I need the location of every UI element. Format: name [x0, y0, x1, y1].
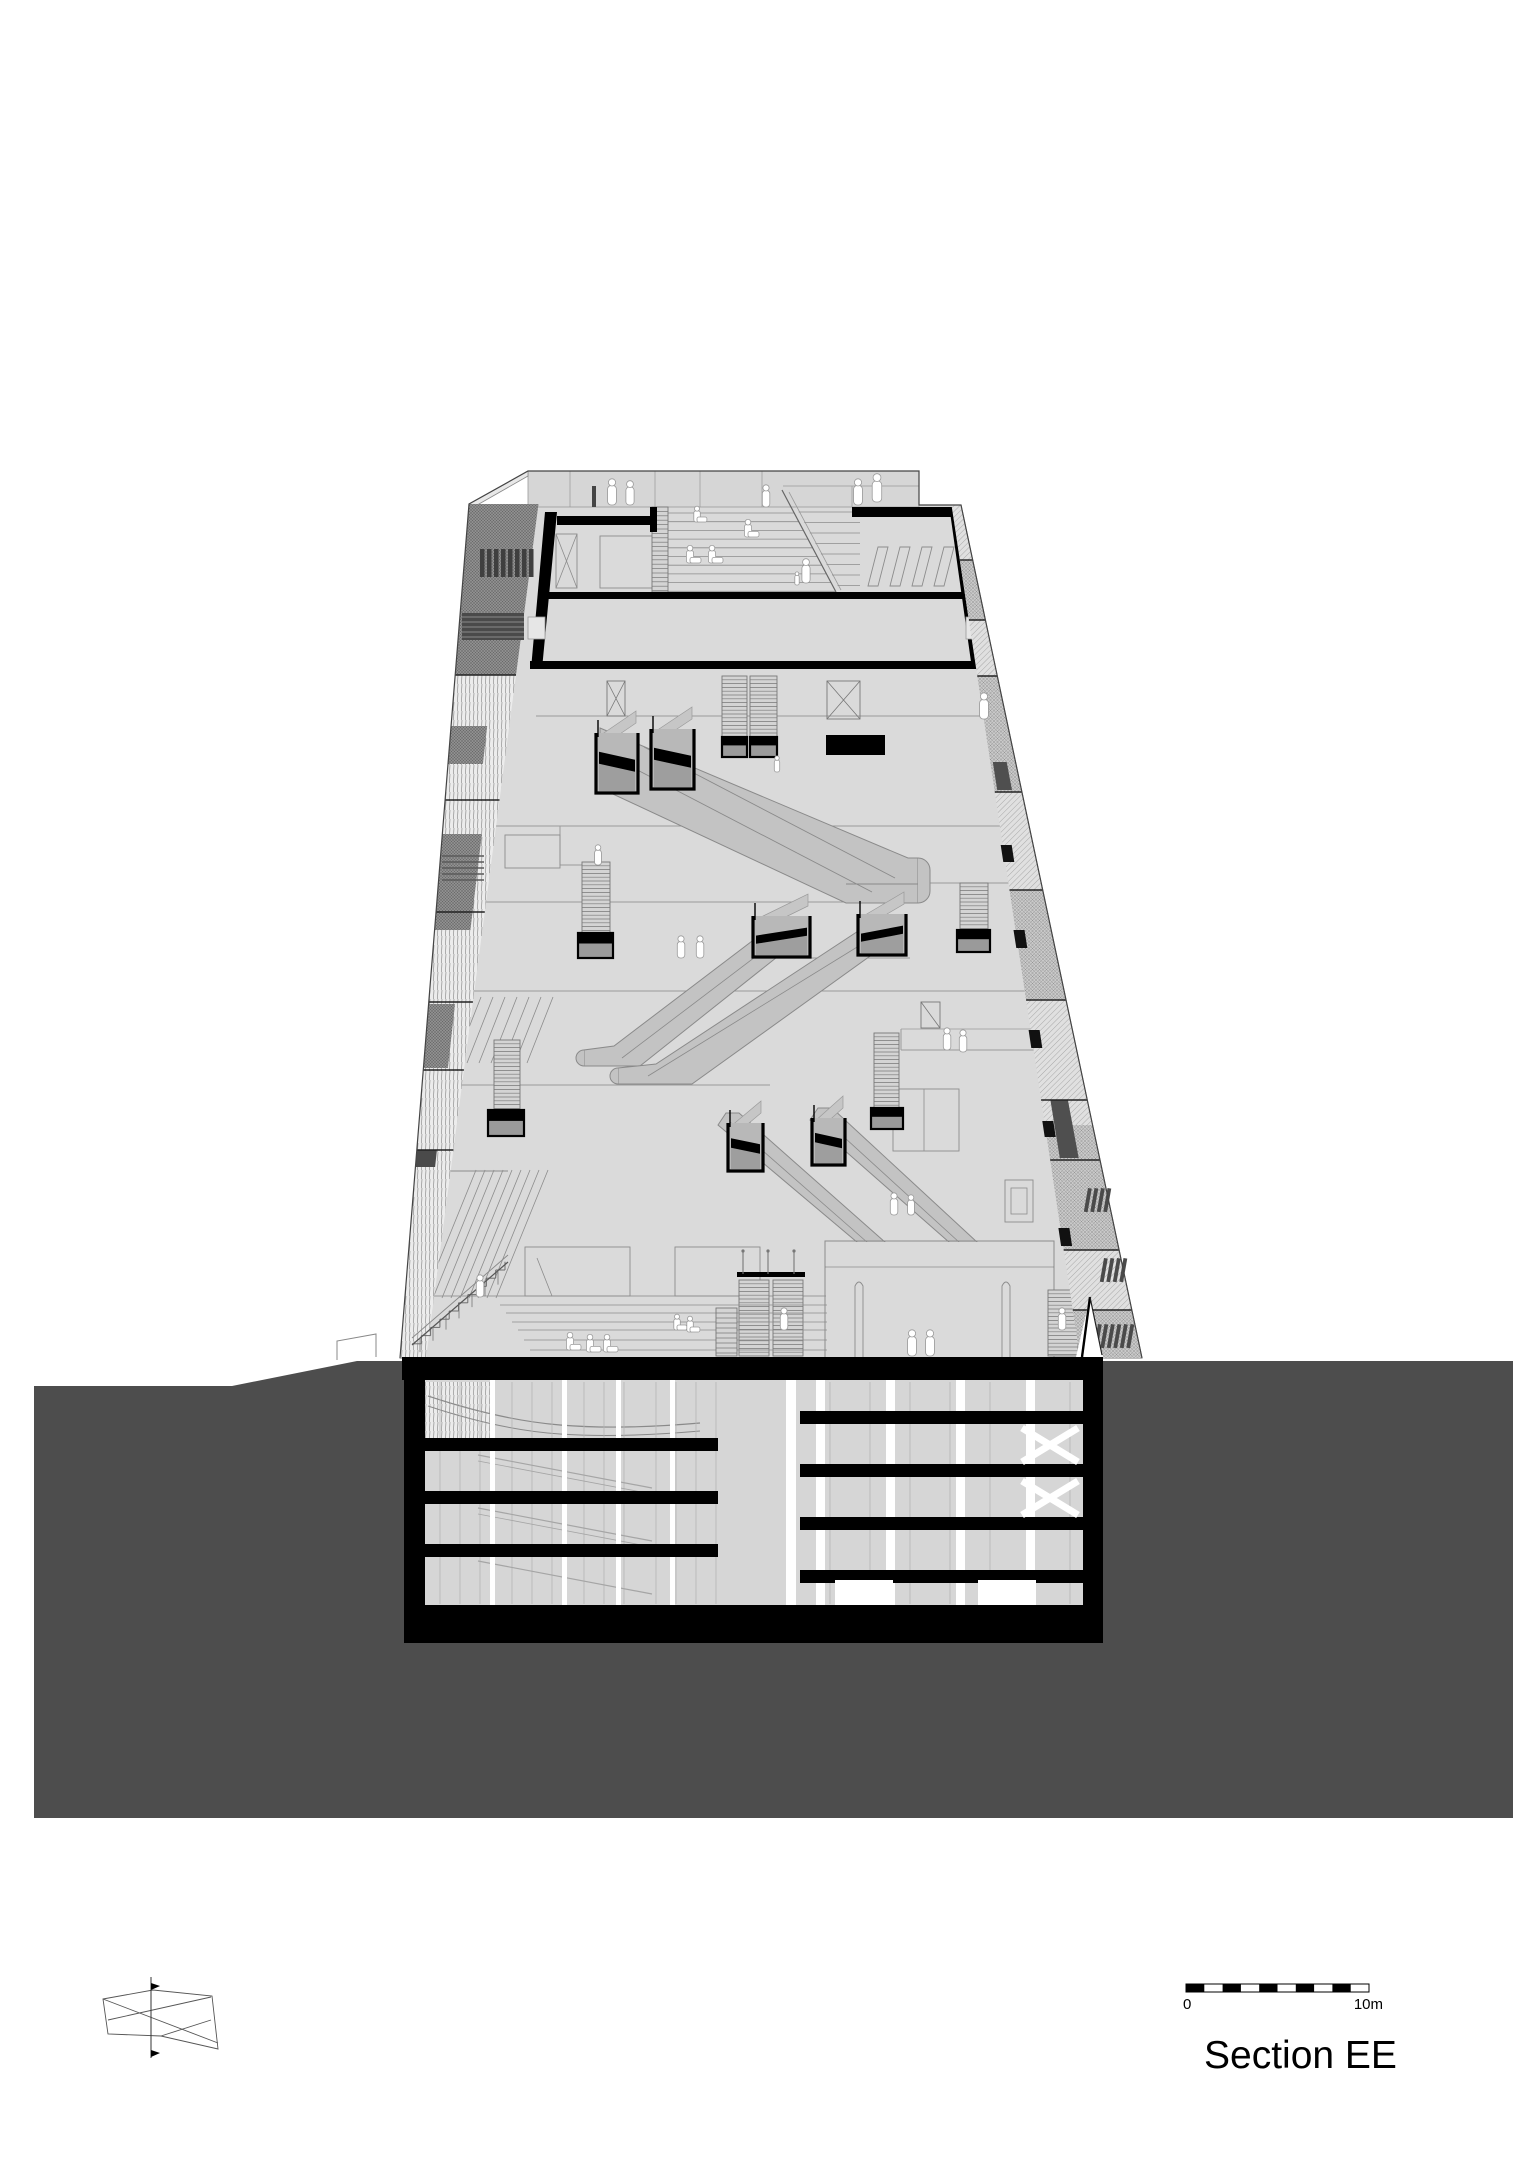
svg-text:10m: 10m — [1354, 1996, 1383, 2013]
svg-text:Section EE: Section EE — [1204, 2034, 1397, 2077]
svg-text:0: 0 — [1183, 1996, 1191, 2013]
